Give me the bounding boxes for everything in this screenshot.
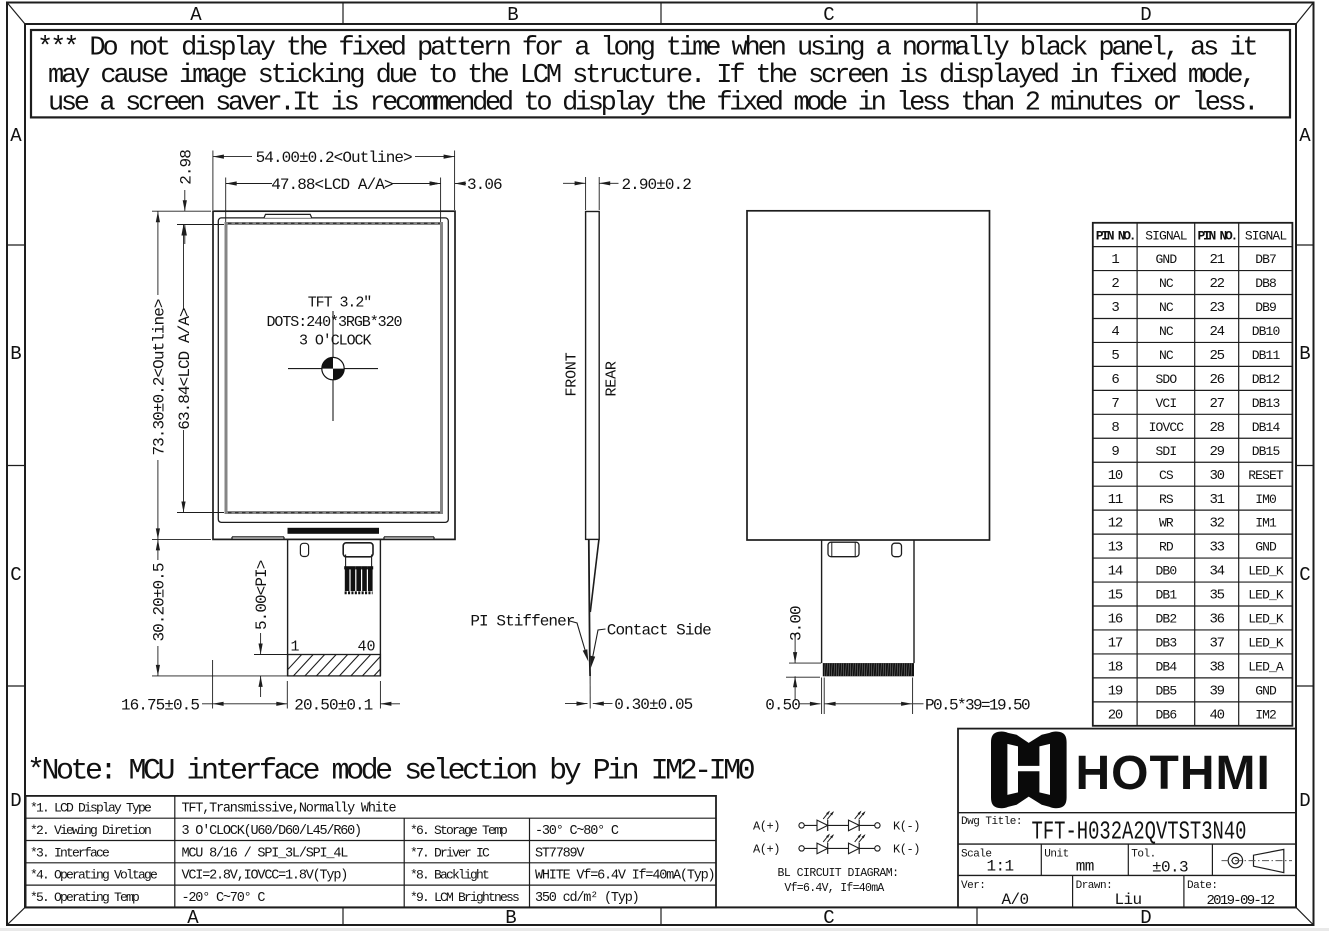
svg-text:*6. Storage Temp: *6. Storage Temp — [410, 823, 507, 838]
svg-text:DB14: DB14 — [1252, 420, 1281, 435]
svg-text:C: C — [10, 564, 21, 586]
svg-text:RESET: RESET — [1248, 468, 1284, 483]
svg-text:GND: GND — [1255, 540, 1277, 555]
svg-text:FRONT: FRONT — [564, 352, 581, 396]
svg-text:D: D — [1140, 4, 1151, 26]
svg-text:3 O'CLOCK(U60/D60/L45/R60): 3 O'CLOCK(U60/D60/L45/R60) — [182, 824, 361, 839]
svg-text:20: 20 — [1108, 707, 1123, 723]
svg-text:40: 40 — [1209, 707, 1224, 723]
svg-text:*** Do not display the fixed p: *** Do not display the fixed pattern for… — [37, 34, 1256, 64]
svg-text:36: 36 — [1209, 612, 1224, 628]
svg-text:18: 18 — [1108, 660, 1123, 676]
svg-text:D: D — [1140, 907, 1151, 929]
svg-text:DOTS:240*3RGB*320: DOTS:240*3RGB*320 — [266, 314, 402, 331]
svg-text:LED_K: LED_K — [1248, 564, 1284, 579]
svg-text:*7. Driver IC: *7. Driver IC — [410, 845, 490, 860]
svg-text:20.50±0.1: 20.50±0.1 — [294, 696, 372, 714]
svg-text:DB5: DB5 — [1156, 683, 1177, 698]
svg-text:MCU 8/16 / SPI_3L/SPI_4L: MCU 8/16 / SPI_3L/SPI_4L — [182, 846, 349, 861]
svg-text:21: 21 — [1209, 252, 1224, 268]
svg-text:27: 27 — [1209, 396, 1224, 412]
svg-text:12: 12 — [1108, 516, 1123, 532]
svg-text:C: C — [823, 907, 834, 929]
svg-text:mm: mm — [1076, 858, 1094, 876]
svg-text:B: B — [507, 4, 518, 26]
svg-text:DB2: DB2 — [1156, 612, 1177, 627]
svg-text:NC: NC — [1159, 348, 1174, 363]
svg-text:A/0: A/0 — [1001, 891, 1028, 909]
svg-text:8: 8 — [1111, 420, 1119, 436]
svg-text:19: 19 — [1108, 683, 1123, 699]
svg-text:17: 17 — [1108, 636, 1123, 652]
svg-text:34: 34 — [1209, 564, 1224, 580]
svg-text:DB3: DB3 — [1156, 636, 1177, 651]
svg-text:10: 10 — [1108, 468, 1123, 484]
svg-text:15: 15 — [1108, 588, 1123, 604]
svg-text:D: D — [10, 790, 21, 812]
svg-text:DB0: DB0 — [1156, 564, 1177, 579]
svg-text:IOVCC: IOVCC — [1149, 420, 1185, 435]
svg-text:Unit: Unit — [1044, 849, 1068, 861]
svg-text:-20° C~70° C: -20° C~70° C — [182, 891, 266, 906]
svg-text:D: D — [1299, 790, 1310, 812]
svg-text:SIGNAL: SIGNAL — [1245, 228, 1287, 243]
svg-text:NC: NC — [1159, 324, 1174, 339]
svg-text:25: 25 — [1209, 348, 1224, 364]
svg-text:*4. Operating Voltage: *4. Operating Voltage — [30, 868, 157, 883]
svg-text:30.20±0.5: 30.20±0.5 — [151, 563, 169, 641]
svg-text:Contact Side: Contact Side — [607, 621, 711, 639]
svg-text:2.98: 2.98 — [177, 150, 195, 185]
svg-text:DB4: DB4 — [1156, 660, 1178, 675]
svg-text:DB1: DB1 — [1156, 588, 1178, 603]
svg-text:TFT 3.2″: TFT 3.2″ — [308, 295, 372, 312]
svg-text:47.88<LCD A/A>: 47.88<LCD A/A> — [271, 176, 393, 194]
svg-text:B: B — [505, 907, 516, 929]
svg-text:29: 29 — [1209, 444, 1224, 460]
svg-text:40: 40 — [358, 639, 376, 656]
svg-text:±0.3: ±0.3 — [1152, 859, 1188, 877]
svg-text:C: C — [1299, 564, 1310, 586]
svg-text:3.00: 3.00 — [788, 606, 806, 641]
svg-text:NC: NC — [1159, 300, 1174, 315]
svg-text:GND: GND — [1255, 683, 1277, 698]
svg-text:ST7789V: ST7789V — [535, 846, 585, 861]
svg-text:16.75±0.5: 16.75±0.5 — [121, 696, 199, 714]
svg-text:4: 4 — [1111, 324, 1119, 340]
svg-text:RD: RD — [1159, 540, 1174, 555]
svg-text:31: 31 — [1209, 492, 1224, 508]
svg-text:WHITE Vf=6.4V If=40mA(Typ): WHITE Vf=6.4V If=40mA(Typ) — [535, 869, 714, 884]
svg-text:30: 30 — [1209, 468, 1224, 484]
svg-text:1:1: 1:1 — [986, 858, 1013, 876]
svg-text:*5. Operating Temp: *5. Operating Temp — [30, 890, 139, 905]
svg-text:TFT-H032A2QVTST3N40: TFT-H032A2QVTST3N40 — [1032, 817, 1247, 847]
svg-text:2.90±0.2: 2.90±0.2 — [622, 176, 692, 194]
svg-text:A: A — [1299, 125, 1311, 147]
svg-text:DB7: DB7 — [1255, 252, 1276, 267]
svg-text:RS: RS — [1159, 492, 1174, 507]
svg-text:28: 28 — [1209, 420, 1224, 436]
svg-text:7: 7 — [1111, 396, 1119, 412]
svg-text:LED_K: LED_K — [1248, 636, 1284, 651]
svg-text:38: 38 — [1209, 660, 1224, 676]
svg-text:*2. Viewing Diretion: *2. Viewing Diretion — [30, 823, 151, 838]
svg-text:A: A — [10, 125, 22, 147]
svg-text:2019-09-12: 2019-09-12 — [1206, 893, 1274, 909]
svg-text:*1. LCD Display Type: *1. LCD Display Type — [30, 801, 151, 816]
svg-text:DB8: DB8 — [1255, 276, 1276, 291]
svg-text:1: 1 — [291, 639, 300, 656]
svg-text:may cause image sticking due t: may cause image sticking due to the LCM … — [48, 61, 1253, 91]
svg-text:73.30±0.2<Outline>: 73.30±0.2<Outline> — [151, 299, 169, 455]
svg-text:54.00±0.2<Outline>: 54.00±0.2<Outline> — [256, 149, 412, 167]
svg-text:Drawn:: Drawn: — [1076, 880, 1113, 892]
svg-text:24: 24 — [1209, 324, 1224, 340]
svg-text:WR: WR — [1159, 516, 1174, 531]
svg-text:33: 33 — [1209, 540, 1224, 556]
svg-text:HOTHMI: HOTHMI — [1076, 747, 1271, 800]
svg-text:Dwg Title:: Dwg Title: — [961, 816, 1022, 828]
svg-text:22: 22 — [1209, 276, 1224, 292]
svg-text:DB13: DB13 — [1252, 396, 1280, 411]
svg-text:A(+): A(+) — [753, 843, 780, 857]
svg-text:IM1: IM1 — [1255, 516, 1277, 531]
svg-text:VCI: VCI — [1156, 396, 1177, 411]
svg-text:B: B — [1299, 343, 1310, 365]
svg-text:VCI=2.8V,IOVCC=1.8V(Typ): VCI=2.8V,IOVCC=1.8V(Typ) — [182, 869, 348, 884]
svg-text:*Note: MCU interface mode sele: *Note: MCU interface mode selection by P… — [27, 755, 755, 789]
svg-text:DB12: DB12 — [1252, 372, 1280, 387]
svg-text:SDI: SDI — [1156, 444, 1177, 459]
svg-text:0.30±0.05: 0.30±0.05 — [614, 696, 692, 714]
svg-text:5.00<PI>: 5.00<PI> — [253, 560, 271, 630]
svg-text:32: 32 — [1209, 516, 1224, 532]
svg-text:IM0: IM0 — [1255, 492, 1276, 507]
svg-text:A: A — [187, 907, 199, 929]
svg-text:LED_K: LED_K — [1248, 612, 1284, 627]
svg-text:PIN NO.: PIN NO. — [1197, 228, 1236, 243]
svg-text:*3. Interface: *3. Interface — [30, 845, 109, 860]
svg-text:SDO: SDO — [1156, 372, 1178, 387]
svg-text:37: 37 — [1209, 636, 1224, 652]
svg-text:14: 14 — [1108, 564, 1123, 580]
svg-text:1: 1 — [1111, 252, 1119, 268]
svg-text:3: 3 — [1111, 300, 1119, 316]
svg-text:SIGNAL: SIGNAL — [1145, 228, 1187, 243]
svg-text:13: 13 — [1108, 540, 1123, 556]
svg-text:use a screen saver.It is recom: use a screen saver.It is recommended to … — [48, 89, 1256, 119]
svg-text:A: A — [190, 4, 202, 26]
svg-text:26: 26 — [1209, 372, 1224, 388]
svg-text:*8. Backlight: *8. Backlight — [410, 868, 489, 883]
svg-text:9: 9 — [1111, 444, 1119, 460]
svg-text:5: 5 — [1111, 348, 1119, 364]
svg-text:REAR: REAR — [604, 361, 621, 396]
svg-text:PI Stiffener: PI Stiffener — [470, 613, 574, 631]
svg-text:B: B — [10, 343, 21, 365]
svg-text:3 O'CLOCK: 3 O'CLOCK — [299, 333, 372, 350]
svg-text:39: 39 — [1209, 683, 1224, 699]
svg-text:DB11: DB11 — [1252, 348, 1281, 363]
svg-text:BL CIRCUIT DIAGRAM:: BL CIRCUIT DIAGRAM: — [777, 867, 898, 880]
svg-text:TFT,Transmissive,Normally Whit: TFT,Transmissive,Normally White — [182, 802, 397, 817]
svg-text:63.84<LCD A/A>: 63.84<LCD A/A> — [176, 308, 194, 430]
svg-text:A(+): A(+) — [753, 820, 780, 834]
svg-text:PIN NO.: PIN NO. — [1096, 228, 1135, 243]
svg-text:NC: NC — [1159, 276, 1174, 291]
svg-text:DB15: DB15 — [1252, 444, 1280, 459]
svg-text:11: 11 — [1108, 492, 1123, 508]
svg-text:GND: GND — [1156, 252, 1178, 267]
svg-text:C: C — [823, 4, 834, 26]
svg-text:3.06: 3.06 — [467, 176, 502, 194]
svg-text:23: 23 — [1209, 300, 1224, 316]
svg-text:16: 16 — [1108, 612, 1123, 628]
svg-text:Vf=6.4V, If=40mA: Vf=6.4V, If=40mA — [784, 882, 884, 895]
svg-text:Ver:: Ver: — [961, 880, 985, 892]
svg-text:Liu: Liu — [1114, 891, 1141, 909]
svg-text:350 cd/m² (Typ): 350 cd/m² (Typ) — [535, 891, 639, 906]
svg-text:*9. LCM Brightness: *9. LCM Brightness — [410, 890, 519, 905]
svg-text:2: 2 — [1111, 276, 1119, 292]
svg-text:Date:: Date: — [1187, 880, 1218, 892]
svg-text:K(-): K(-) — [893, 843, 920, 857]
svg-text:IM2: IM2 — [1255, 707, 1276, 722]
svg-text:LED_K: LED_K — [1248, 588, 1284, 603]
svg-text:DB6: DB6 — [1156, 707, 1177, 722]
svg-text:LED_A: LED_A — [1248, 660, 1284, 675]
svg-text:CS: CS — [1159, 468, 1174, 483]
svg-text:35: 35 — [1209, 588, 1224, 604]
svg-text:K(-): K(-) — [893, 820, 920, 834]
svg-text:DB10: DB10 — [1252, 324, 1280, 339]
svg-text:6: 6 — [1111, 372, 1119, 388]
svg-text:-30° C~80° C: -30° C~80° C — [535, 824, 619, 839]
svg-text:0.50: 0.50 — [765, 696, 800, 714]
svg-text:DB9: DB9 — [1255, 300, 1276, 315]
svg-text:P0.5*39=19.50: P0.5*39=19.50 — [925, 696, 1030, 714]
